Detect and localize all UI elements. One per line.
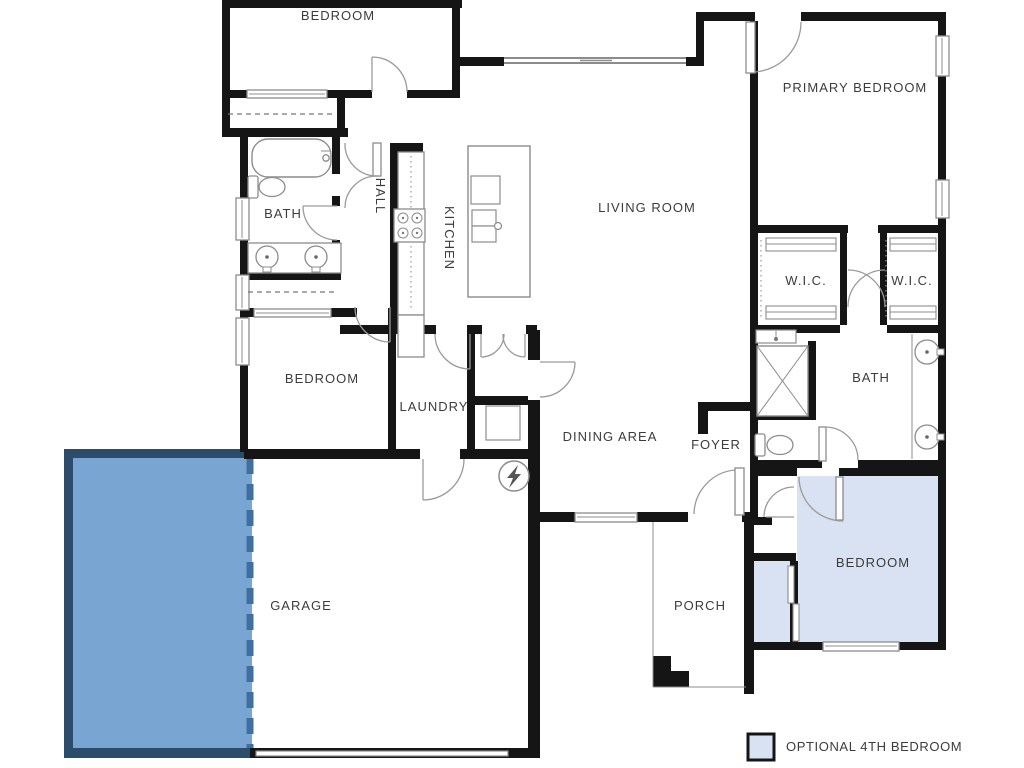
door-swing: [355, 307, 390, 342]
kitchen-island: [468, 146, 530, 297]
room-label-bath-primary: BATH: [852, 370, 890, 385]
door-swing: [435, 334, 470, 369]
room-label-laundry: LAUNDRY: [400, 399, 469, 414]
double-sink-vanity: [248, 243, 341, 273]
floor-plan: BEDROOM PRIMARY BEDROOM LIVING ROOM HALL…: [0, 0, 1024, 768]
double-door-swing: [481, 334, 525, 357]
room-label-foyer: FOYER: [691, 437, 741, 452]
legend-swatch: [748, 734, 774, 760]
window: [823, 642, 899, 651]
door-swing: [423, 459, 464, 500]
bathtub-fixture: [252, 139, 331, 177]
door-swing: [746, 22, 801, 73]
room-label-porch: PORCH: [674, 598, 726, 613]
double-door-swing: [848, 270, 885, 307]
window: [236, 198, 249, 240]
window: [575, 513, 637, 522]
front-door-swing: [694, 468, 744, 515]
room-label-hall: HALL: [373, 178, 388, 215]
room-label-bedroom-optional: BEDROOM: [836, 555, 910, 570]
room-label-wic-right: W.I.C.: [891, 273, 932, 288]
window: [936, 36, 949, 76]
utility-platform: [486, 406, 520, 440]
room-label-dining-area: DINING AREA: [563, 429, 658, 444]
floor-plan-drawing: BEDROOM PRIMARY BEDROOM LIVING ROOM HALL…: [0, 0, 1024, 768]
window: [236, 318, 249, 365]
kitchen-counter: [398, 152, 424, 357]
stove-fixture: [394, 209, 425, 242]
window: [936, 180, 949, 218]
toilet-fixture: [755, 434, 793, 456]
porch-steps: [653, 656, 689, 687]
sliding-glass-door: [504, 58, 686, 63]
room-label-bedroom-top: BEDROOM: [301, 8, 375, 23]
legend-label: OPTIONAL 4TH BEDROOM: [786, 739, 962, 754]
room-label-living-room: LIVING ROOM: [598, 200, 696, 215]
garage-door: [256, 751, 508, 756]
sink-fixture: [756, 330, 796, 343]
room-label-primary-bedroom: PRIMARY BEDROOM: [783, 80, 928, 95]
door-swing: [764, 487, 794, 517]
room-label-kitchen: KITCHEN: [442, 206, 457, 270]
door-swing: [372, 57, 407, 92]
legend: OPTIONAL 4TH BEDROOM: [748, 734, 962, 760]
shower-fixture: [757, 346, 808, 416]
toilet-fixture: [248, 176, 285, 198]
room-label-garage: GARAGE: [270, 598, 332, 613]
door-swing: [819, 427, 858, 461]
room-label-bath-hall: BATH: [264, 206, 302, 221]
room-label-wic-left: W.I.C.: [785, 273, 826, 288]
room-label-bedroom-middle: BEDROOM: [285, 371, 359, 386]
sliding-door: [254, 309, 331, 317]
window: [247, 90, 327, 98]
door-swing: [540, 362, 575, 397]
water-heater: [499, 461, 529, 491]
door-swing: [303, 206, 337, 240]
garage-highlight: [64, 449, 252, 758]
window: [236, 275, 249, 310]
